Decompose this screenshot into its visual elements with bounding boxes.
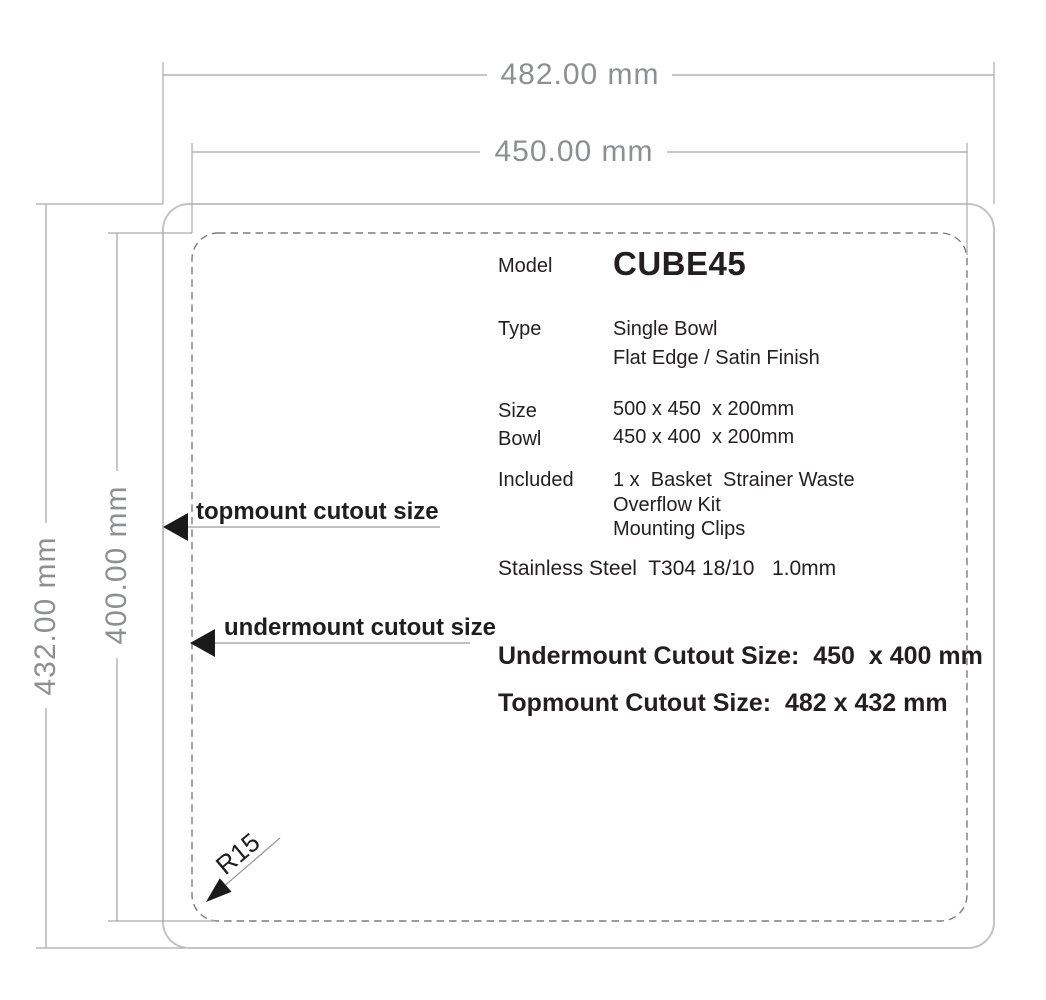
included-value-line3: Mounting Clips — [613, 518, 745, 541]
model-value: CUBE45 — [613, 245, 746, 283]
extension-lines — [36, 62, 994, 948]
bowl-label: Bowl — [498, 428, 541, 451]
dimension-top-inner: 450.00 mm — [494, 135, 653, 169]
dimension-lines — [46, 75, 994, 948]
material-spec: Stainless Steel T304 18/10 1.0mm — [498, 557, 836, 581]
radius-arrowhead-icon — [206, 878, 232, 902]
topmount-arrowhead-icon — [163, 513, 188, 541]
dimension-top-outer: 482.00 mm — [500, 58, 659, 92]
model-label: Model — [498, 255, 552, 278]
undermount-arrowhead-icon — [190, 629, 215, 657]
topmount-cutout-summary: Topmount Cutout Size: 482 x 432 mm — [498, 689, 948, 718]
leader-lines — [165, 527, 470, 888]
undermount-callout-label: undermount cutout size — [224, 614, 496, 642]
dimension-left-outer: 432.00 mm — [29, 536, 63, 695]
dimension-left-inner: 400.00 mm — [100, 485, 134, 644]
bowl-value: 450 x 400 x 200mm — [613, 426, 794, 449]
included-label: Included — [498, 469, 574, 492]
size-value: 500 x 450 x 200mm — [613, 398, 794, 421]
type-value-line2: Flat Edge / Satin Finish — [613, 347, 820, 370]
undermount-cutout-summary: Undermount Cutout Size: 450 x 400 mm — [498, 642, 983, 671]
included-value-line1: 1 x Basket Strainer Waste — [613, 469, 855, 492]
sink-cutout-drawing: 482.00 mm 450.00 mm 432.00 mm 400.00 mm … — [0, 0, 1046, 1000]
topmount-callout-label: topmount cutout size — [196, 498, 439, 526]
type-label: Type — [498, 318, 541, 341]
type-value-line1: Single Bowl — [613, 318, 718, 341]
size-label: Size — [498, 400, 537, 423]
included-value-line2: Overflow Kit — [613, 494, 721, 517]
